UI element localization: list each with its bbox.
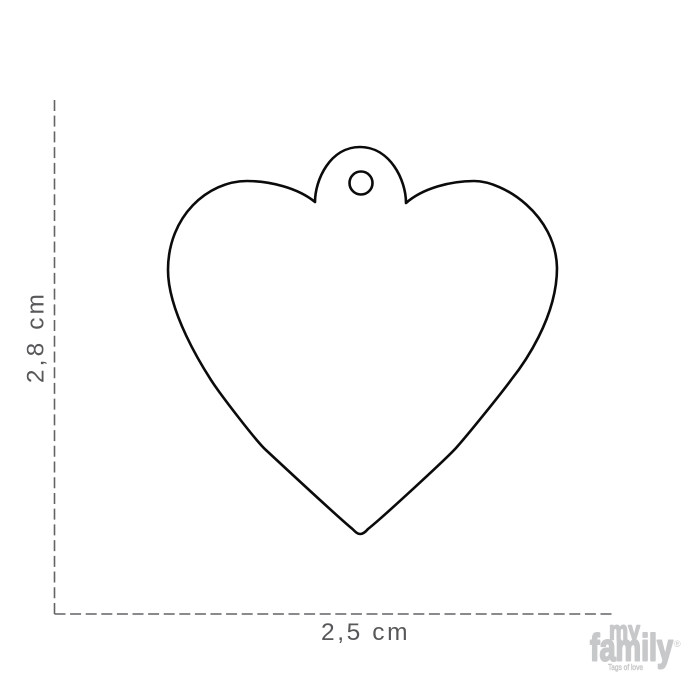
svg-text:®: ®	[674, 639, 681, 649]
svg-text:Tags of love: Tags of love	[608, 663, 643, 672]
svg-text:2,5 cm: 2,5 cm	[321, 619, 410, 646]
svg-text:2,8 cm: 2,8 cm	[23, 291, 50, 383]
